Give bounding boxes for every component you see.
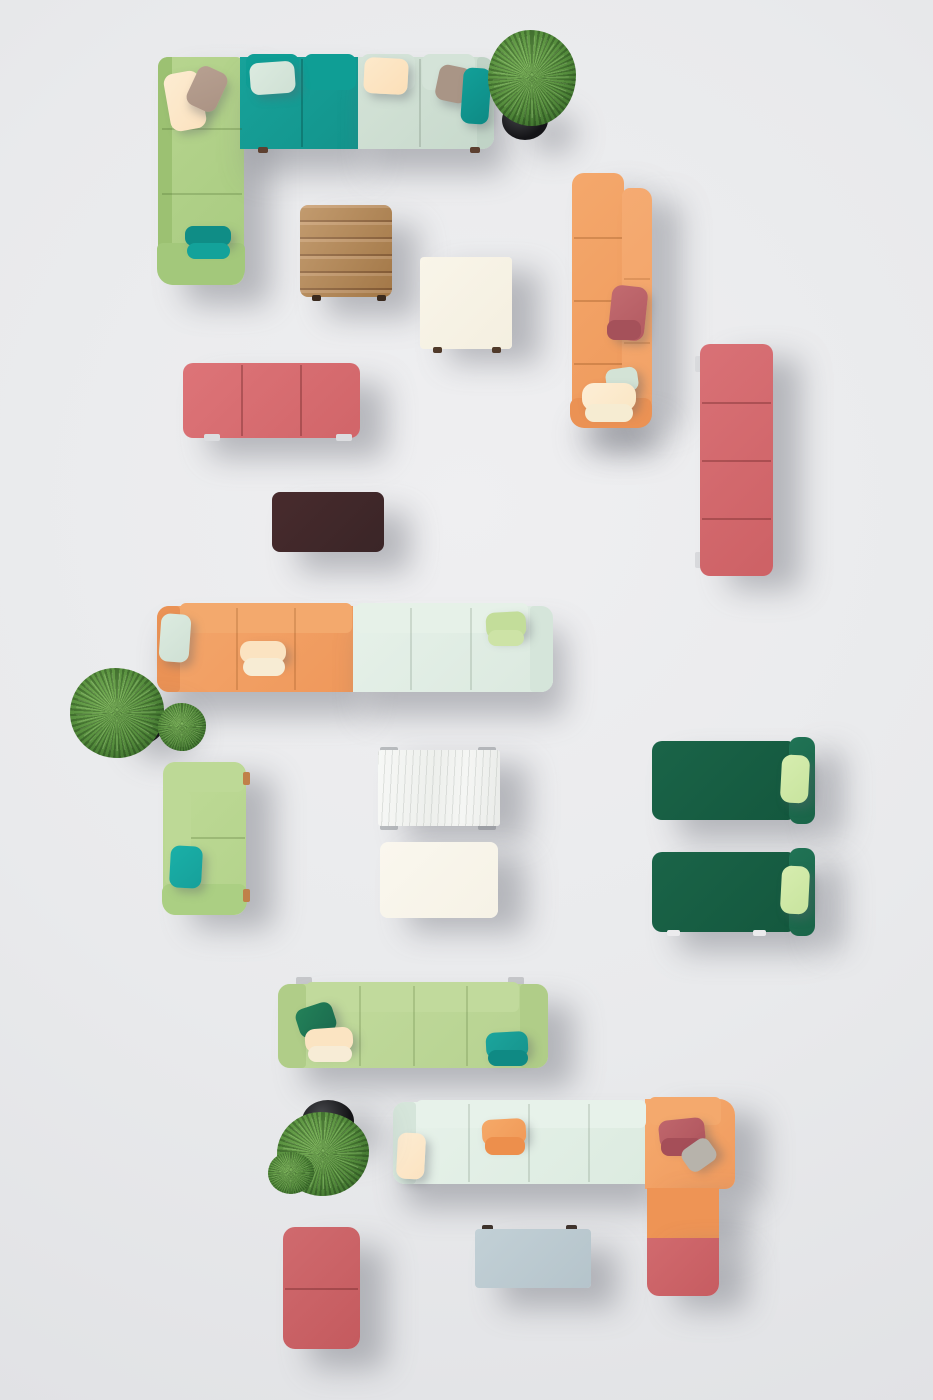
pillow-cream-stack-b xyxy=(585,404,633,422)
bench-seam xyxy=(300,365,302,436)
bench-coral-horizontal xyxy=(183,363,360,438)
sofa-bottom-red-module xyxy=(647,1238,719,1296)
sofa-mid-seam xyxy=(236,608,238,690)
sectional-tl-seam-teal xyxy=(301,59,303,147)
pillow-green-right-b xyxy=(488,630,524,646)
wood-coffee-table xyxy=(300,205,392,297)
sofa-bottom-back-mint xyxy=(416,1100,646,1128)
sofa-orange-seam xyxy=(574,237,622,239)
sofa-bottom-orange-vertical xyxy=(647,1188,719,1238)
pillow-orange-b xyxy=(485,1137,525,1155)
sofa-mid-seam xyxy=(410,608,412,690)
sofa-green4-seam xyxy=(359,986,361,1066)
sofa-green-vertical-top-arm xyxy=(164,762,245,792)
seat-red-seam xyxy=(285,1288,358,1290)
marble-coffee-table xyxy=(378,750,500,826)
dark-brown-table xyxy=(272,492,384,552)
table-foot xyxy=(377,295,386,301)
sofa-bottom-seam xyxy=(588,1104,590,1182)
sectional-tl-seam-mint xyxy=(419,59,421,147)
plant-left-small xyxy=(158,703,206,751)
sofa-orange-seam xyxy=(624,278,650,280)
plant-left-large xyxy=(70,668,164,758)
sofa-green-seam xyxy=(191,837,245,839)
lounge-foot xyxy=(753,930,766,936)
sofa-green4-seam xyxy=(413,986,415,1066)
sectional-tl-back-teal-2 xyxy=(304,54,356,90)
pillow-mint-left-end xyxy=(158,613,191,663)
pillow-cream-g4-b xyxy=(308,1046,352,1062)
cream-side-table xyxy=(420,257,512,349)
sectional-tl-seam-green-2 xyxy=(162,193,242,195)
pillow-cream-bottom xyxy=(396,1132,426,1179)
sofa-bottom-seam xyxy=(468,1104,470,1182)
sofa-connector xyxy=(243,889,250,902)
table-foot xyxy=(492,347,501,353)
lounge-green-2-pillow xyxy=(780,865,810,914)
pillow-teal-folded-b xyxy=(187,243,230,259)
bench-seam xyxy=(702,402,771,404)
table-foot xyxy=(433,347,442,353)
table-foot xyxy=(312,295,321,301)
sofa-bottom-seam xyxy=(528,1104,530,1182)
plant-top xyxy=(488,30,576,126)
sofa-foot xyxy=(470,147,480,153)
ivory-coffee-table xyxy=(380,842,498,918)
bench-bracket xyxy=(204,434,220,441)
sofa-mid-seam xyxy=(294,608,296,690)
sofa-mid-back-orange xyxy=(180,603,352,633)
sofa-mid-seam xyxy=(470,608,472,690)
sofa-orange-seam xyxy=(624,342,650,344)
pillow-cream-mid-b xyxy=(243,658,285,676)
sofa-green-vertical-bottom-arm xyxy=(162,884,247,915)
bench-seam xyxy=(702,460,771,462)
pillow-teal-g4-b xyxy=(488,1050,528,1066)
lounge-foot xyxy=(667,930,680,936)
bench-seam xyxy=(702,518,771,520)
sofa-mid-right-arm xyxy=(530,606,553,692)
lounge-green-1-pillow xyxy=(780,754,810,803)
pillow-cream-on-mint xyxy=(363,57,409,95)
sofa-orange-seam xyxy=(574,363,622,365)
bench-seam xyxy=(241,365,243,436)
lounge-green-1-main xyxy=(652,741,792,820)
sofa-connector xyxy=(243,772,250,785)
bench-bracket xyxy=(336,434,352,441)
sofa-green4-seam xyxy=(466,986,468,1066)
pillow-mint-on-teal xyxy=(249,60,296,95)
sofa-foot xyxy=(258,147,268,153)
pillow-teal-green-sofa xyxy=(169,845,203,889)
pillow-rose-fold xyxy=(607,320,641,340)
furniture-scene xyxy=(0,0,933,1400)
lounge-green-2-main xyxy=(652,852,792,932)
blue-gray-table xyxy=(475,1229,591,1288)
